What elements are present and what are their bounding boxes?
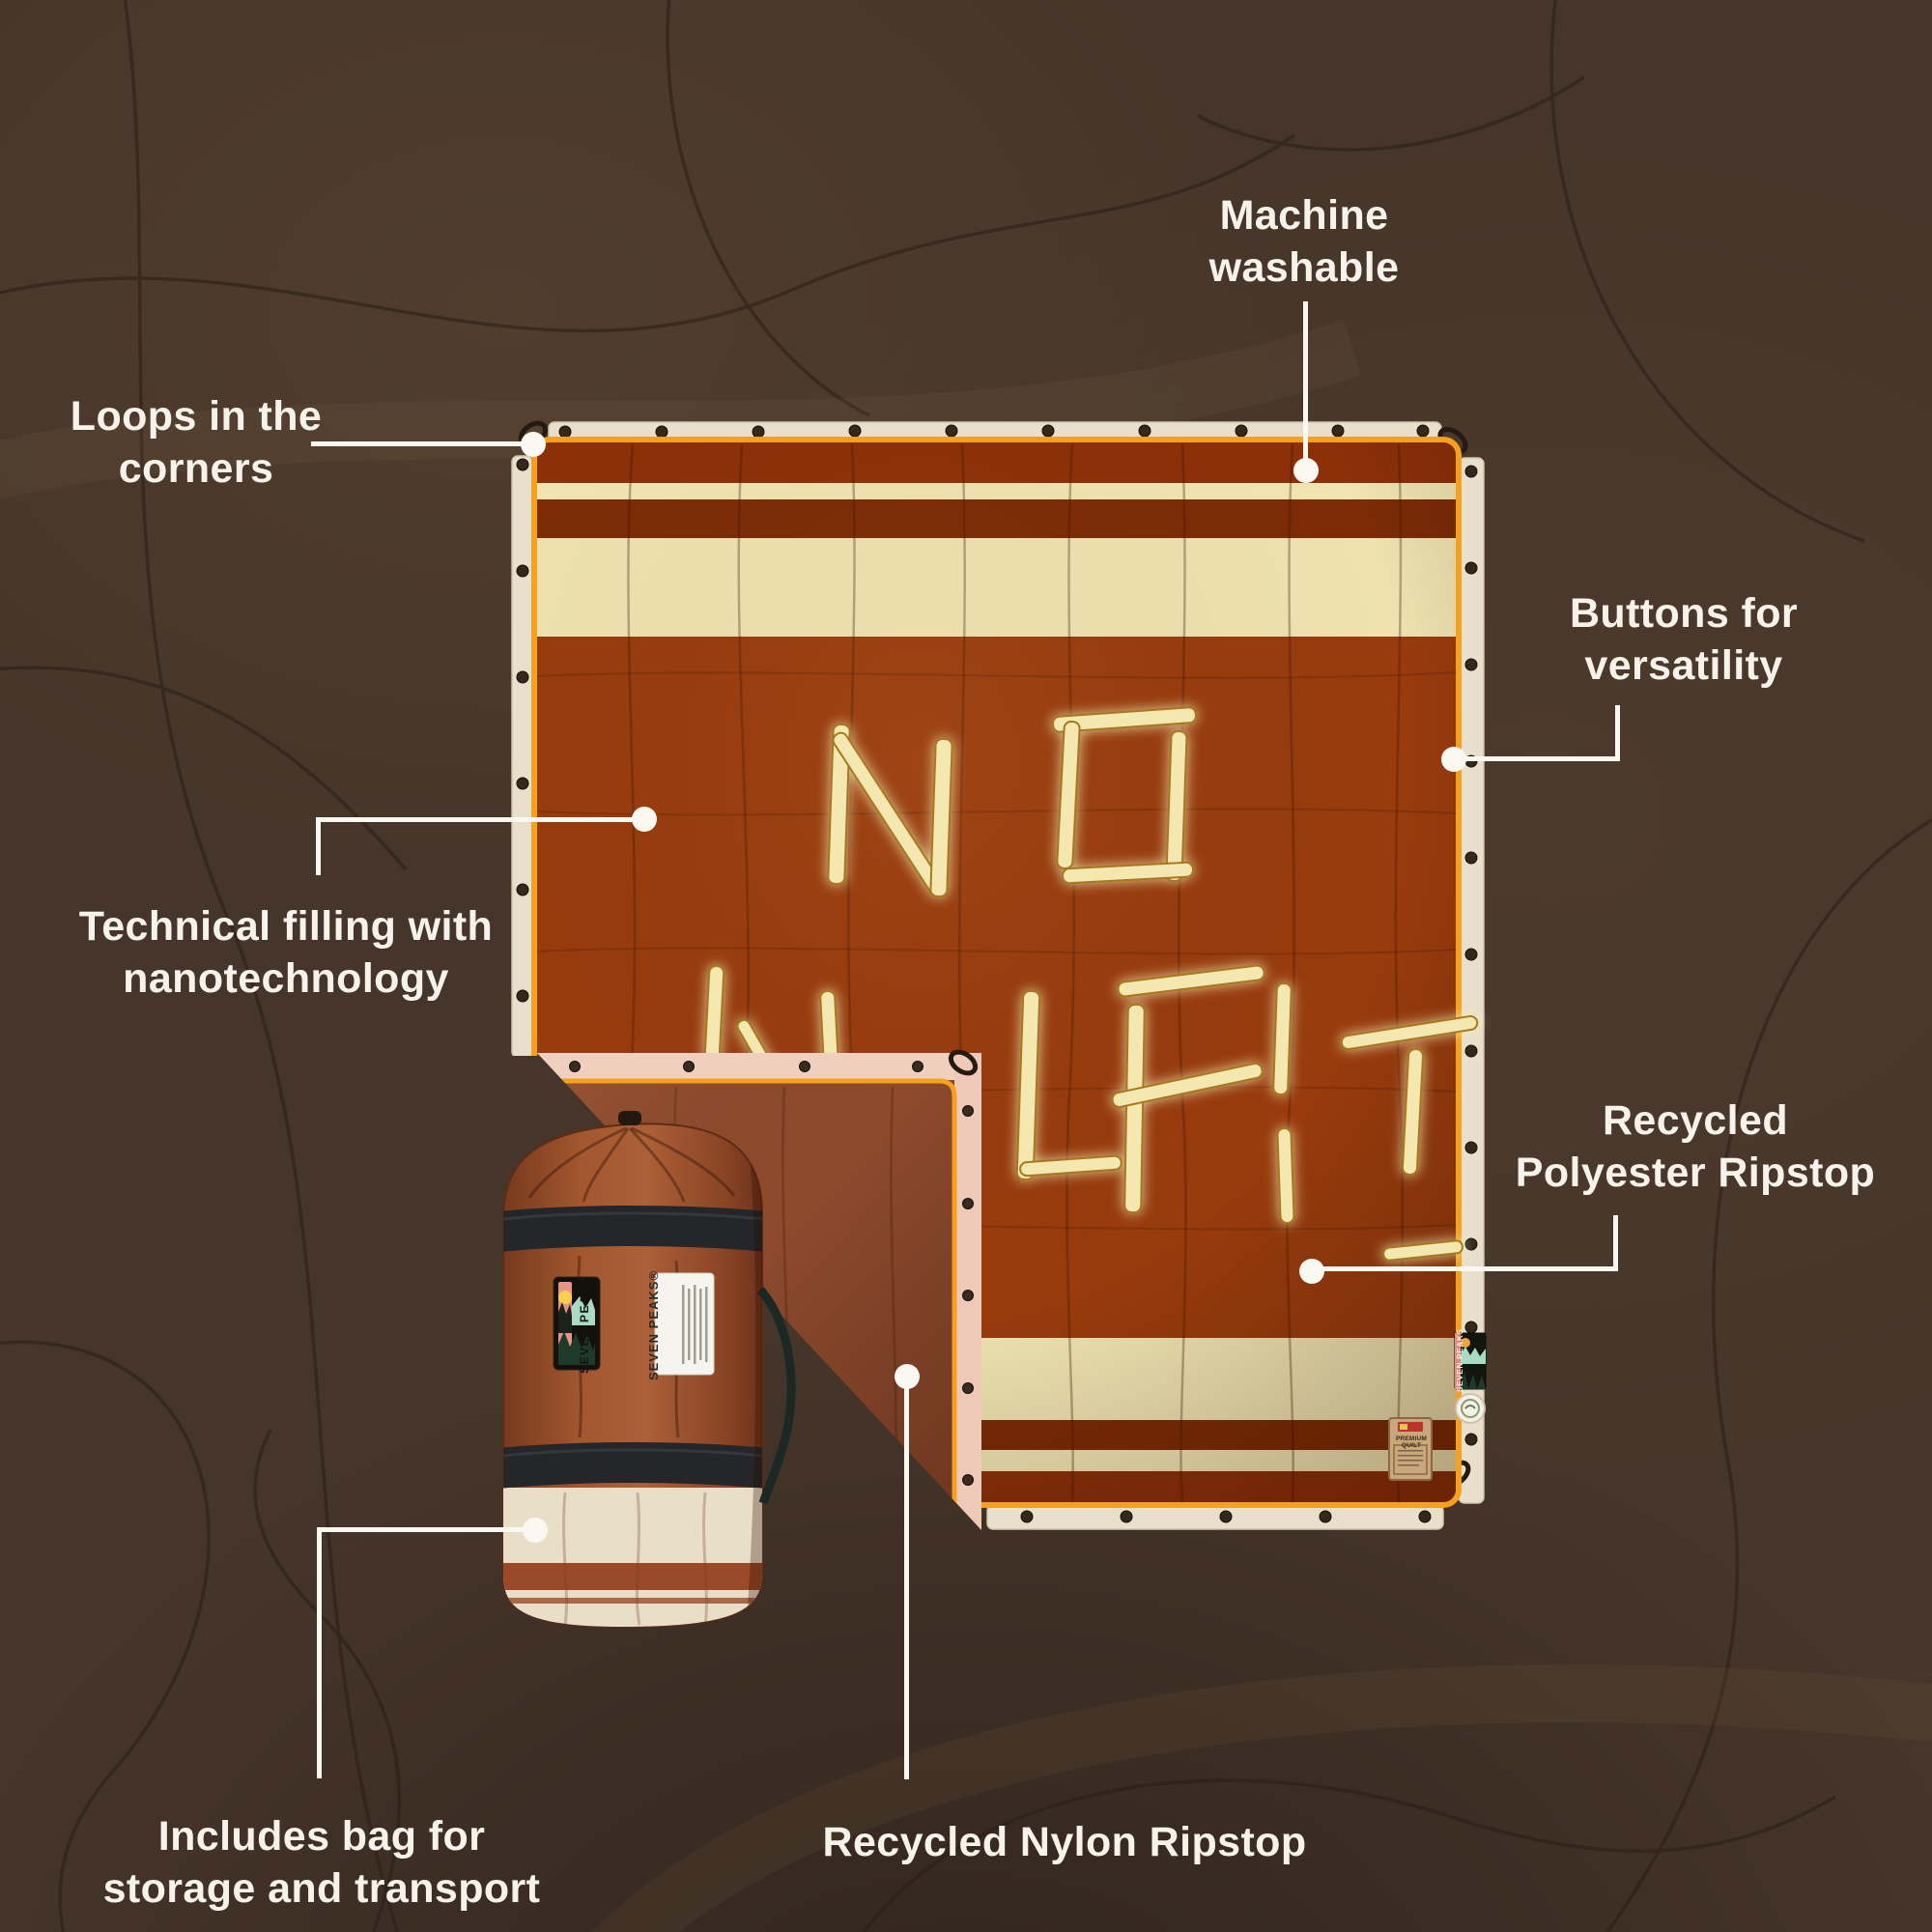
callout-line [317,1527,322,1778]
callout-dot [632,807,657,832]
callout-dot [523,1518,548,1543]
bag-brand-patch [554,1277,600,1370]
premium-quilt-tag-text: PREMIUM QUILT [1390,1435,1433,1449]
callout-label-line: Buttons for [1539,587,1829,639]
edge-label-brand-text: SEVEN PEAKS [1456,1328,1464,1392]
callout-line [311,441,524,446]
storage-bag [493,1111,791,1633]
bag-patch-brand-text: SEVEN PEAKS [578,1275,591,1374]
callout-line [1303,301,1308,462]
callout-label-line: Recycled [1492,1094,1898,1147]
callout-technical-filling: Technical filling with nanotechnology [54,900,518,1005]
callout-dot [521,432,546,457]
callout-line [317,1527,527,1532]
callout-loops-in-corners: Loops in the corners [51,390,341,495]
callout-label-line: corners [51,442,341,495]
callout-label-line: Technical filling with [54,900,518,952]
callout-line [1463,756,1620,761]
callout-buttons-versatility: Buttons for versatility [1539,587,1829,692]
callout-line [904,1383,909,1779]
callout-dot [1293,458,1319,483]
bag-white-label [655,1273,714,1375]
callout-label-line: Recycled Nylon Ripstop [813,1816,1316,1868]
callout-dot [1441,747,1466,772]
callout-label-line: washable [1111,241,1497,294]
callout-label-line: Machine [1111,189,1497,241]
callout-includes-bag: Includes bag for storage and transport [51,1810,592,1915]
callout-label-line: Loops in the [51,390,341,442]
callout-label-line: Polyester Ripstop [1492,1147,1898,1199]
callout-line [1613,1215,1618,1271]
bag-label-title-text: SEVEN PEAKS® [646,1270,661,1380]
bag-cinch-toggle [618,1111,641,1125]
callout-recycled-polyester: Recycled Polyester Ripstop [1492,1094,1898,1199]
callout-label-line: versatility [1539,639,1829,692]
callout-line [1323,1266,1618,1271]
callout-label-line: nanotechnology [54,952,518,1005]
callout-label-line: Includes bag for [51,1810,592,1862]
callout-label-line: storage and transport [51,1862,592,1915]
callout-dot [895,1364,920,1389]
callout-dot [1299,1259,1324,1284]
callout-line [1615,705,1620,761]
callout-recycled-nylon: Recycled Nylon Ripstop [813,1816,1316,1868]
callout-line [316,817,635,822]
eco-round-tag [1456,1394,1485,1423]
callout-machine-washable: Machine washable [1111,189,1497,294]
callout-line [316,817,321,875]
bag-handle [760,1290,791,1503]
premium-quilt-tag [1389,1418,1432,1480]
product-infographic: SEVEN PEAKS SEVEN PEAKS® SEVEN PEAKS PRE… [0,0,1932,1932]
